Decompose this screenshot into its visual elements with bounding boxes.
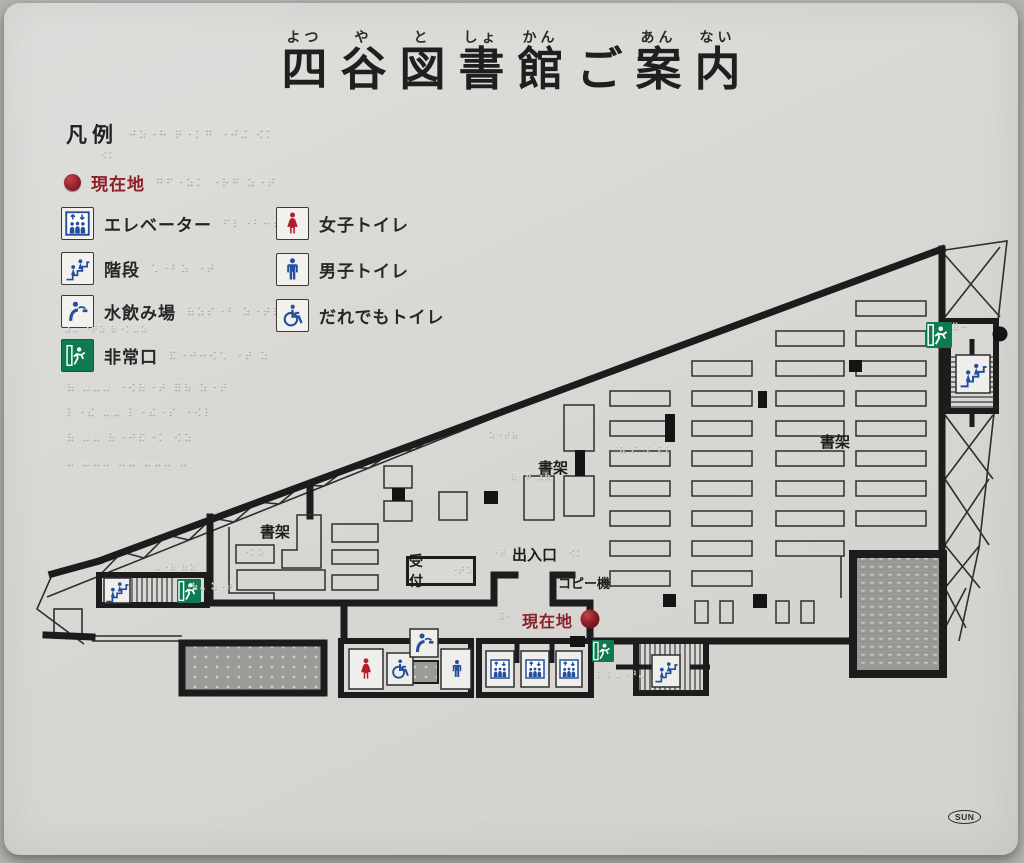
title-char: よつ四 (282, 27, 328, 93)
braille-text: ⠐⠞⠵ (450, 566, 473, 576)
legend-item-current-location: 現在地 ⠛⠋⠐⠵⠅ ⠐⠗⠛ ⠵⠐⠞ (64, 170, 277, 195)
braille-text: ⠯⠐⠚⠒⠪⠡ ⠐⠞ ⠵ (168, 349, 270, 362)
title-char: ご (577, 27, 623, 93)
braille-text: ⠪⠅ (100, 151, 115, 161)
legend-item-emergency-exit: 非常口 ⠯⠐⠚⠒⠪⠡ ⠐⠞ ⠵ (61, 339, 270, 372)
legend-item-men-toilet: 男子トイレ (276, 253, 409, 286)
braille-text: ⠿⠂ (498, 612, 513, 622)
title-char: あん案 (636, 27, 682, 93)
legend-heading-braille2: ⠪⠅ (100, 151, 115, 161)
current-location-label: 現在地 (522, 608, 573, 632)
elevator-icon (491, 660, 509, 678)
braille-text: ⠤⠐⠷ ⠷⠵ (154, 563, 196, 573)
fountain-icon (418, 634, 434, 653)
legend-item-elevator: エレベーター ⠋⠇⠐⠃⠒⠞ ⠐⠵ (61, 207, 308, 240)
current-location-dot (581, 610, 600, 629)
current-location-dot (64, 174, 81, 191)
title-char: かん館 (518, 27, 564, 93)
braille-text: ⠪⠅ (568, 549, 583, 559)
title-char: と図 (400, 27, 446, 93)
men-toilet-icon (453, 660, 462, 677)
fountain-icon (61, 295, 94, 328)
braille-text: ⠐⠷⠤ ⠵⠐⠞ (184, 583, 233, 593)
emergency-exit-icon (592, 640, 614, 662)
braille-text: ⠷ ⠤⠤ ⠷⠐⠚⠯⠐⠅ ⠪⠵ (66, 425, 229, 450)
legend-fountain-braille2: ⠴⠤ ⠐⠞⠵ ⠷⠐⠅⠤⠵ (64, 325, 148, 335)
stairs-icon (61, 252, 94, 285)
accessible-toilet-icon (276, 299, 309, 332)
emergency-exit-icon (61, 339, 94, 372)
entrance-label: 出入口 (512, 544, 557, 565)
shelf-label: 書架 (820, 431, 850, 452)
legend-item-stairs: 階段 ⠡⠐⠃⠵ ⠐⠞ (61, 252, 216, 285)
braille-text: ⠷⠵⠎⠐⠃ ⠵⠐⠞⠷ (186, 305, 282, 318)
legend-item-fountain: 水飲み場 ⠷⠵⠎⠐⠃ ⠵⠐⠞⠷ (61, 295, 282, 328)
title-char: ない内 (695, 27, 741, 93)
accessible-toilet-icon (393, 659, 408, 677)
legend-item-women-toilet: 女子トイレ (276, 207, 409, 240)
elevator-icon (526, 660, 544, 678)
elevator-icon (560, 660, 578, 678)
elevator-icon (61, 207, 94, 240)
legend-braille-paragraph: ⠷ ⠤⠤⠤ ⠐⠪⠷⠐⠞ ⠿⠷ ⠵⠐⠞⠇⠐⠮ ⠤⠤ ⠇⠐⠮⠐⠎ ⠐⠪⠇⠷ ⠤⠤ ⠷… (66, 375, 229, 475)
braille-text: ⠿⠒ (952, 323, 967, 333)
maker-logo: SUN (948, 810, 981, 824)
women-toilet-icon (276, 207, 309, 240)
braille-text: ⠵⠐⠞⠷ (488, 431, 518, 441)
sign-panel: よつ四や谷と図しょ書かん館ごあん案ない内 凡例 ⠚⠵⠐⠓ ⠟⠐⠅⠛ ⠐⠚⠬ ⠪⠅… (4, 3, 1018, 855)
emergency-exit-icon (926, 322, 952, 348)
page-title-chars: よつ四や谷と図しょ書かん館ごあん案ない内 (282, 27, 741, 93)
braille-text: ⠷⠐⠞ ⠵⠷ (510, 473, 552, 483)
braille-text: ⠐⠚⠵ ⠞⠐⠇ ⠗⠕ (604, 446, 672, 456)
braille-text: ⠐⠅⠵ (242, 548, 265, 558)
legend-heading: 凡例 ⠚⠵⠐⠓ ⠟⠐⠅⠛ ⠐⠚⠬ ⠪⠅ (66, 119, 275, 149)
copier-label: コピー機 (558, 573, 610, 592)
stairs-icon (961, 364, 987, 387)
reception-box: 受付 ⠐⠞⠵ (406, 556, 476, 586)
women-toilet-icon (361, 658, 371, 678)
title-char: や谷 (341, 27, 387, 93)
title-char: しょ書 (459, 27, 505, 93)
header: よつ四や谷と図しょ書かん館ごあん案ない内 (4, 27, 1018, 93)
braille-text: ⠚⠵⠐⠓ ⠟⠐⠅⠛ ⠐⠚⠬ ⠪⠅ (128, 128, 275, 141)
braille-text: ⠐⠞ (491, 549, 506, 559)
stairs-icon (655, 662, 677, 681)
braille-text: ⠛⠋⠐⠵⠅ ⠐⠗⠛ ⠵⠐⠞ (155, 176, 277, 189)
braille-text: ⠷ ⠤⠤⠤ ⠐⠪⠷⠐⠞ ⠿⠷ ⠵⠐⠞ (66, 375, 229, 400)
men-toilet-icon (276, 253, 309, 286)
braille-text: ⠡⠐⠃⠵ ⠐⠞ (150, 262, 216, 275)
braille-text: ⠤ ⠤⠤⠤ ⠤⠤ ⠤⠤⠤ ⠤ (66, 450, 229, 475)
legend-item-accessible-toilet: だれでもトイレ (276, 299, 445, 332)
braille-text: ⠇⠸ ⠤⠐⠞⠤ (596, 671, 645, 681)
stairs-icon (106, 582, 128, 601)
reception-label: 受付 (409, 551, 445, 591)
braille-text: ⠴⠤ ⠐⠞⠵ ⠷⠐⠅⠤⠵ (64, 325, 148, 335)
shelf-label: 書架 (260, 521, 290, 542)
braille-text: ⠇⠐⠮ ⠤⠤ ⠇⠐⠮⠐⠎ ⠐⠪⠇ (66, 400, 229, 425)
